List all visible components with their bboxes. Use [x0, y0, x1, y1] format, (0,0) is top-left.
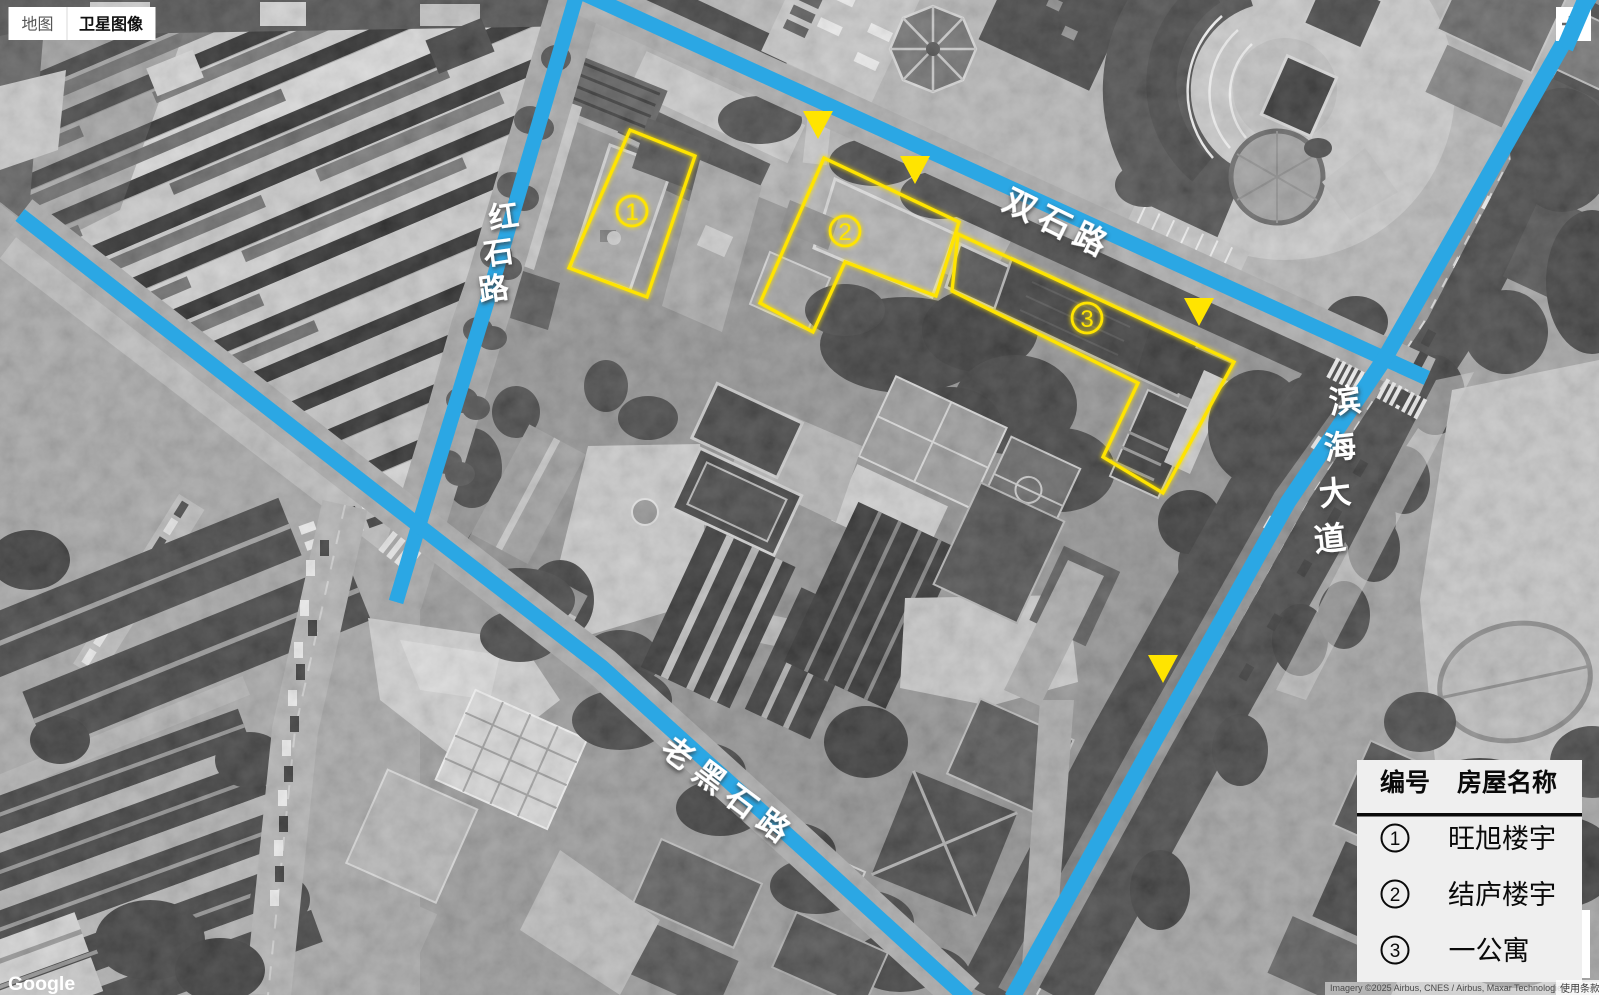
svg-text:滨: 滨: [1327, 381, 1363, 420]
svg-text:旺旭楼宇: 旺旭楼宇: [1448, 824, 1556, 854]
svg-text:2: 2: [1390, 885, 1401, 906]
svg-text:道: 道: [1312, 519, 1348, 558]
svg-text:编号: 编号: [1380, 768, 1430, 797]
svg-text:Google: Google: [8, 973, 75, 995]
svg-text:结庐楼宇: 结庐楼宇: [1448, 880, 1556, 910]
svg-text:卫星图像: 卫星图像: [79, 15, 144, 34]
svg-text:1: 1: [625, 199, 638, 226]
svg-text:房屋名称: 房屋名称: [1457, 768, 1557, 797]
svg-text:路: 路: [477, 271, 512, 308]
svg-text:3: 3: [1390, 941, 1401, 962]
svg-text:2: 2: [838, 219, 851, 246]
svg-text:|: |: [1553, 983, 1555, 993]
svg-text:使用条款: 使用条款: [1560, 982, 1599, 995]
svg-text:红: 红: [487, 199, 521, 236]
svg-text:3: 3: [1080, 306, 1093, 333]
svg-text:一公寓: 一公寓: [1449, 936, 1530, 966]
svg-text:大: 大: [1317, 473, 1353, 512]
svg-text:地图: 地图: [21, 16, 53, 34]
svg-text:1: 1: [1390, 829, 1401, 850]
svg-text:Imagery ©2025 Airbus, CNES / A: Imagery ©2025 Airbus, CNES / Airbus, Max…: [1330, 983, 1567, 993]
svg-text:海: 海: [1322, 427, 1358, 466]
svg-text:石: 石: [481, 235, 516, 272]
